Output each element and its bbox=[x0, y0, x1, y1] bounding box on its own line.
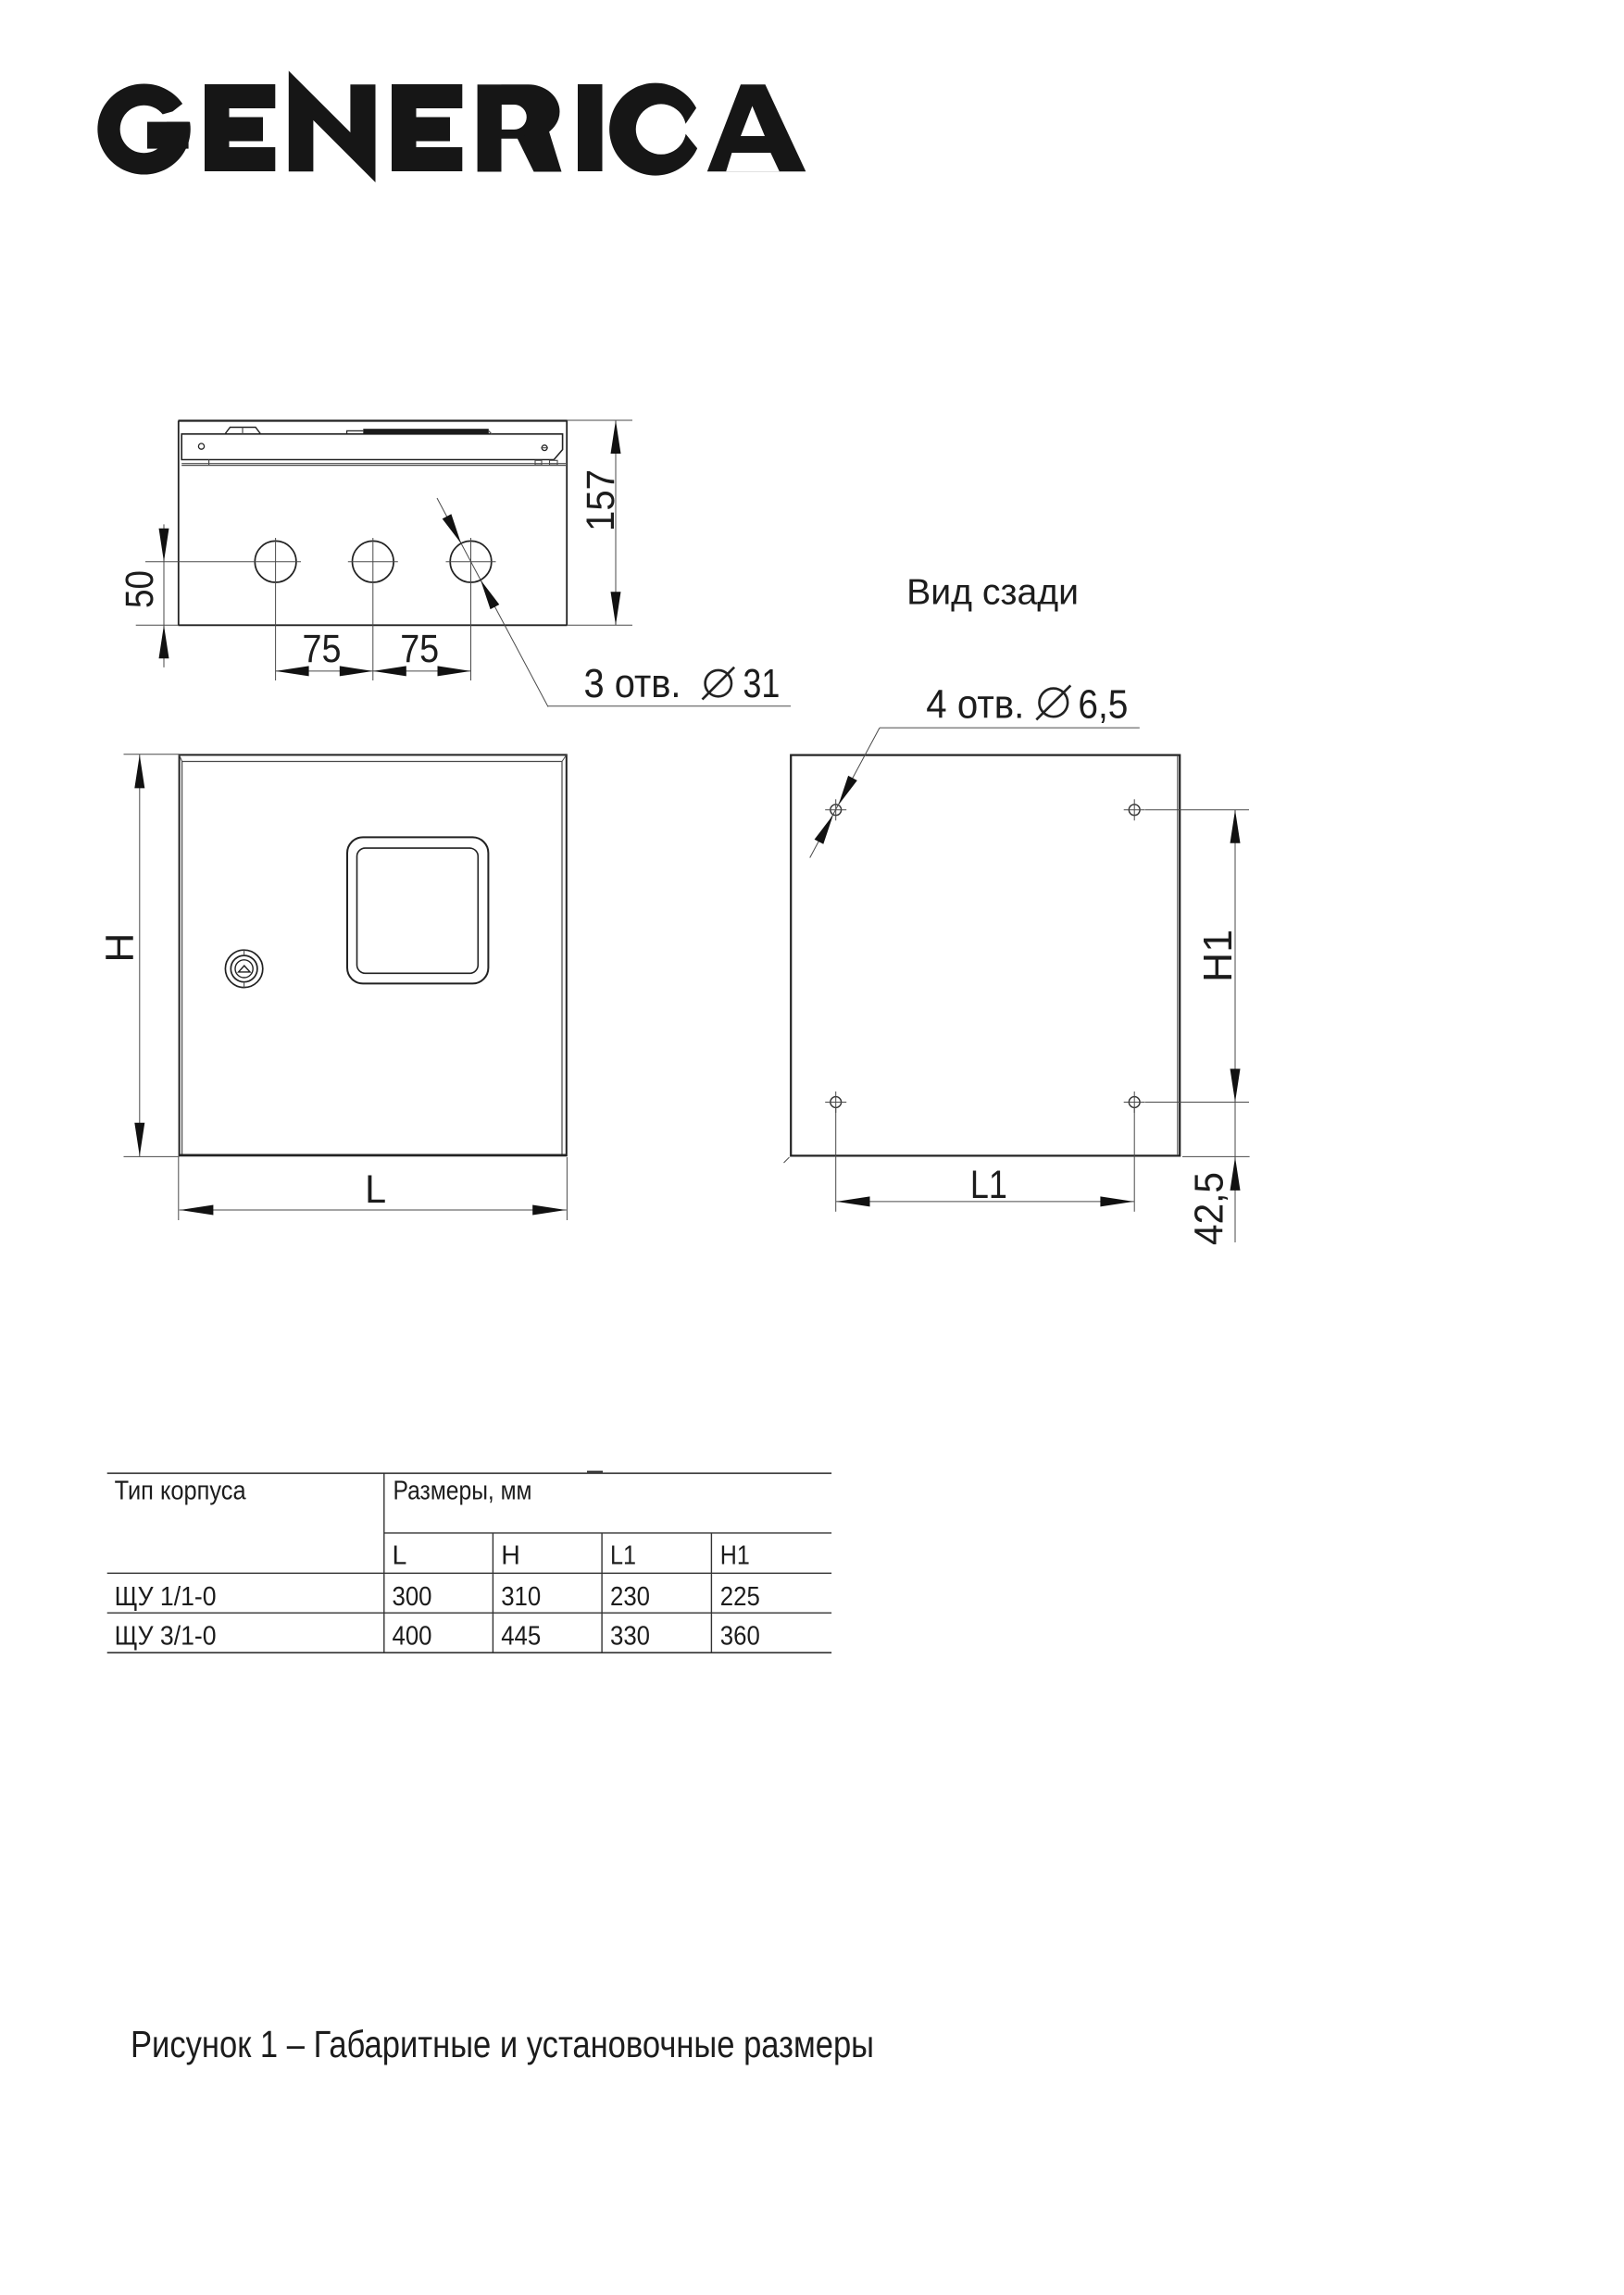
svg-text:ЩУ 1/1-0: ЩУ 1/1-0 bbox=[115, 1582, 217, 1612]
svg-text:H: H bbox=[501, 1541, 520, 1571]
svg-text:Размеры, мм: Размеры, мм bbox=[394, 1477, 532, 1506]
svg-text:330: 330 bbox=[610, 1622, 650, 1652]
svg-text:75: 75 bbox=[400, 628, 439, 671]
svg-text:Вид сзади: Вид сзади bbox=[906, 573, 1079, 613]
svg-text:230: 230 bbox=[610, 1582, 650, 1612]
svg-text:6,5: 6,5 bbox=[1078, 682, 1128, 728]
svg-text:360: 360 bbox=[720, 1622, 760, 1652]
svg-text:L1: L1 bbox=[610, 1541, 636, 1571]
svg-text:4 отв.: 4 отв. bbox=[926, 682, 1024, 728]
svg-text:75: 75 bbox=[303, 628, 342, 671]
svg-text:Рисунок 1 – Габаритные и устан: Рисунок 1 – Габаритные и установочные ра… bbox=[131, 2023, 874, 2065]
svg-text:L: L bbox=[393, 1541, 407, 1571]
svg-text:300: 300 bbox=[393, 1582, 432, 1612]
svg-text:157: 157 bbox=[580, 469, 623, 531]
svg-text:H1: H1 bbox=[720, 1541, 750, 1571]
svg-text:L: L bbox=[365, 1168, 386, 1212]
svg-text:31: 31 bbox=[743, 661, 780, 706]
svg-text:Тип корпуса: Тип корпуса bbox=[115, 1477, 246, 1506]
svg-text:ЩУ 3/1-0: ЩУ 3/1-0 bbox=[115, 1622, 217, 1652]
svg-text:50: 50 bbox=[119, 570, 162, 608]
svg-text:42,5: 42,5 bbox=[1187, 1172, 1232, 1245]
svg-text:310: 310 bbox=[501, 1582, 541, 1612]
svg-text:400: 400 bbox=[393, 1622, 432, 1652]
svg-text:445: 445 bbox=[501, 1622, 541, 1652]
svg-text:3 отв.: 3 отв. bbox=[584, 661, 681, 706]
svg-text:225: 225 bbox=[720, 1582, 760, 1612]
svg-text:H: H bbox=[99, 933, 143, 963]
svg-text:H1: H1 bbox=[1195, 929, 1241, 982]
svg-text:L1: L1 bbox=[970, 1164, 1007, 1207]
